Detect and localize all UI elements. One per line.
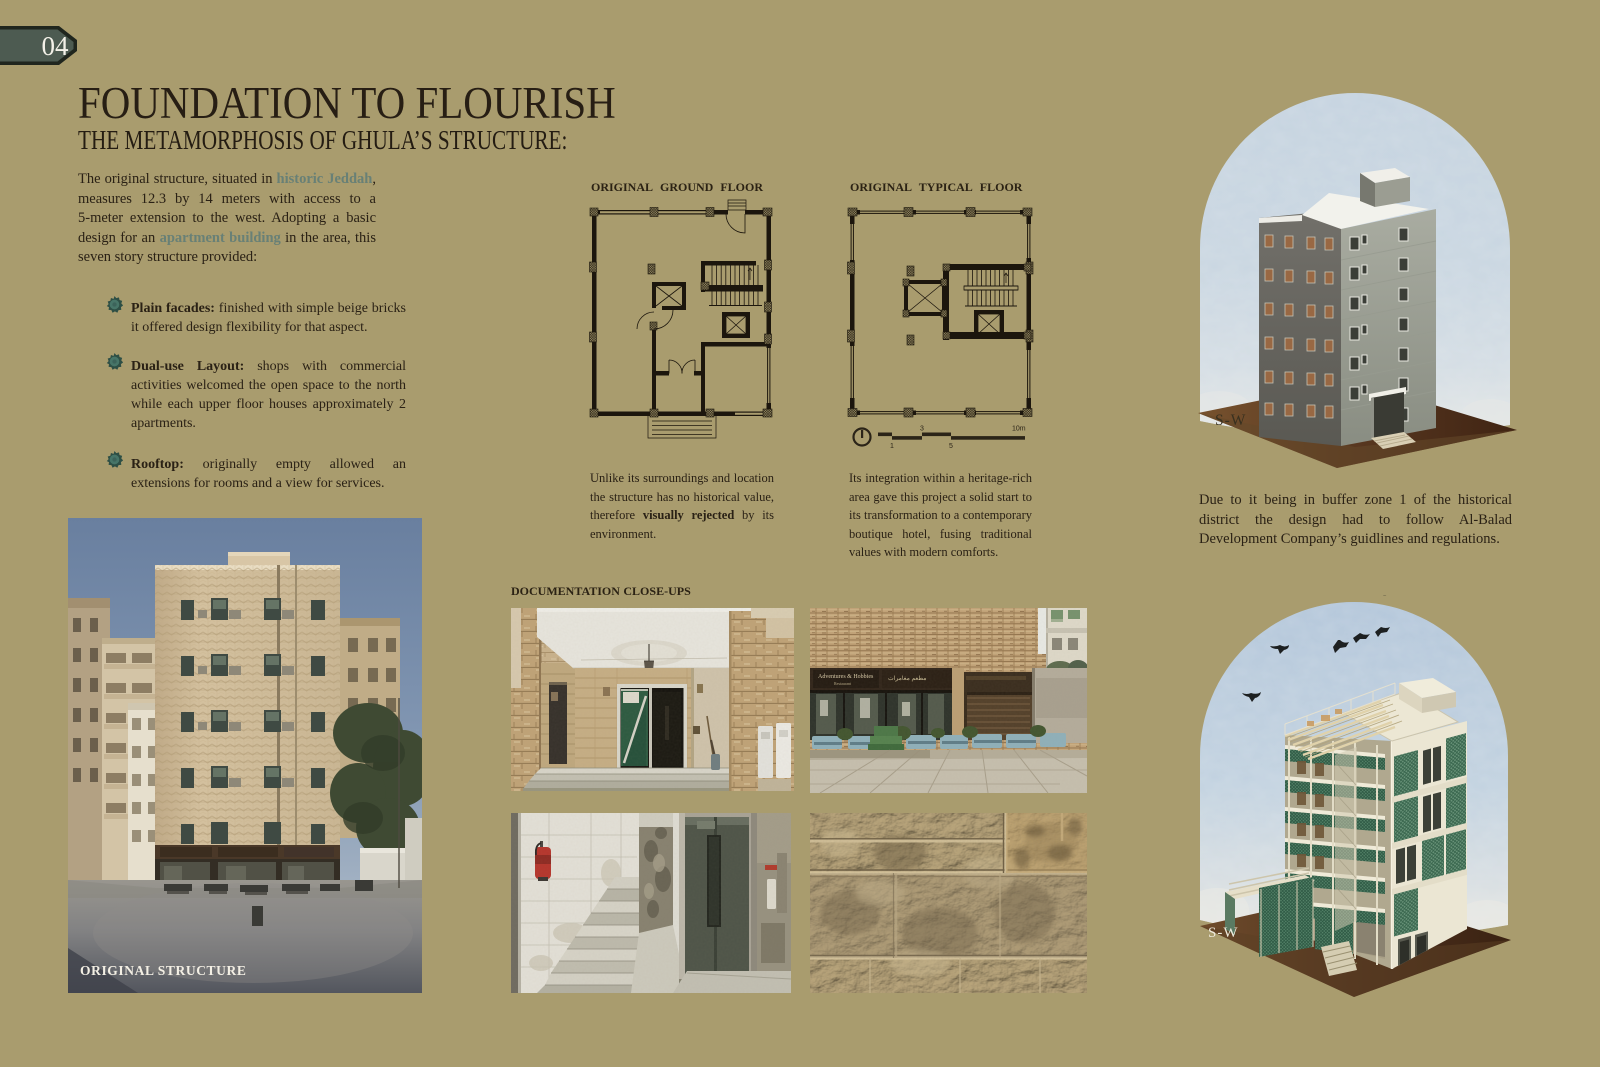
svg-text:5: 5	[949, 443, 953, 450]
svg-text:1: 1	[890, 443, 894, 450]
svg-text:3: 3	[920, 426, 924, 433]
svg-text:S-W: S-W	[1208, 925, 1239, 941]
svg-text:04: 04	[42, 31, 70, 61]
svg-text:S-W: S-W	[1215, 412, 1246, 429]
svg-text:ORIGINAL STRUCTURE: ORIGINAL STRUCTURE	[80, 963, 246, 978]
svg-text:10m: 10m	[1012, 426, 1026, 433]
